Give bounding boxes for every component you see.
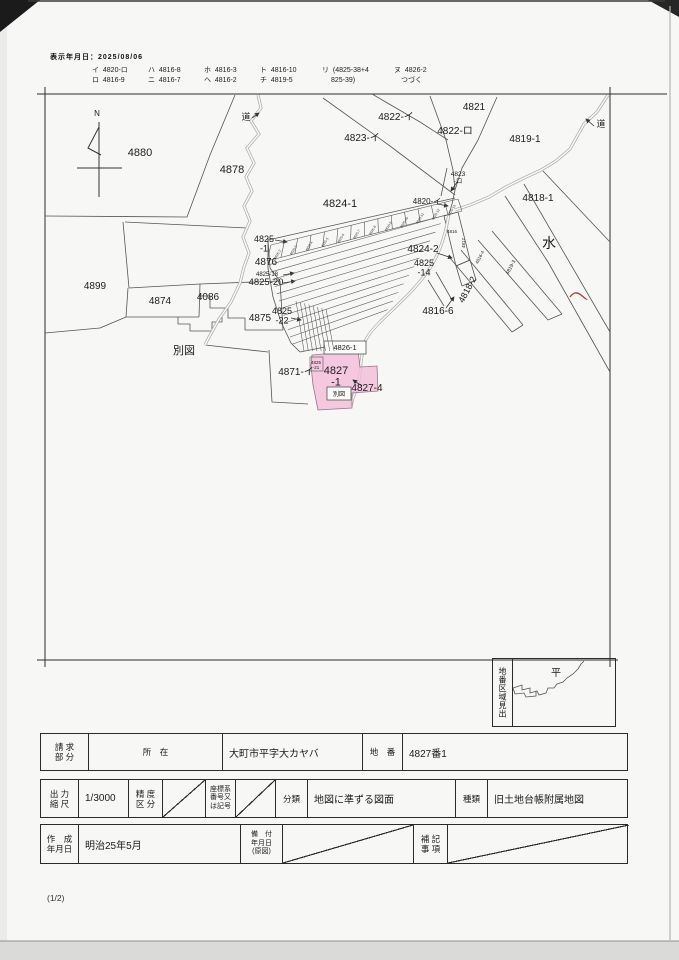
legend: イ 4820-ロロ 4816-9ハ 4816-8ニ 4816-7ホ 4816-3… [92, 66, 446, 85]
legend-entry: ハ 4816-8 [148, 66, 204, 76]
table-row-location: 請 求 部 分 所 在 大町市平字大カヤバ 地 番 4827番1 [40, 733, 628, 771]
map-label: 4880 [128, 147, 152, 159]
locator-area-name: 平 [551, 664, 561, 679]
legend-entry: イ 4820-ロ [92, 66, 148, 76]
map-label: 4822-イ [378, 112, 414, 123]
legend-column: ト 4816-10チ 4819-5 [260, 66, 322, 85]
scale-label: 出 力 縮 尺 [41, 780, 79, 817]
table-row-dates: 作 成 年月日 明治25年5月 備 付 年月日 (原図) 補 記 事 項 [40, 824, 628, 864]
legend-column: ヌ 4826-2 つづく [394, 66, 446, 85]
map-label: 4827-4 [351, 383, 383, 394]
map-label: 4825-20 [249, 277, 284, 288]
map-label: 道 [241, 111, 250, 122]
scan-bottom-strip [0, 941, 679, 960]
page-number: (1/2) [47, 893, 64, 903]
map-label: 4086 [197, 292, 220, 303]
remarks-label: 補 記 事 項 [414, 825, 448, 863]
coordinate-system-blank [236, 780, 276, 817]
map-label: 水 [542, 235, 556, 251]
locator-title-vertical: 地番区域見出 [493, 659, 513, 726]
scale-value: 1/3000 [79, 780, 129, 817]
legend-entry: ホ 4816-3 [204, 66, 260, 76]
classification-label: 分類 [276, 780, 308, 817]
request-info-table: 請 求 部 分 所 在 大町市平字大カヤバ 地 番 4827番1 出 力 縮 尺… [40, 733, 628, 864]
legend-entry: チ 4819-5 [260, 76, 322, 86]
legend-entry: ロ 4816-9 [92, 76, 148, 86]
request-part-label: 請 求 部 分 [41, 734, 89, 770]
legend-column: イ 4820-ロロ 4816-9 [92, 66, 148, 85]
installed-date-blank [283, 825, 414, 863]
map-label: 4826-1 [333, 343, 356, 352]
printed-date: 表示年月日：2025/08/06 [50, 52, 143, 62]
legend-entry: つづく [394, 76, 446, 86]
map-label: 4824-2 [407, 244, 439, 255]
legend-column: リ (4825-38+4 825-39) [322, 66, 394, 85]
map-label: 別図 [173, 344, 195, 357]
map-label: 4875 [249, 313, 272, 324]
map-label: 4871-イ [278, 367, 314, 378]
map-label: 4821 [463, 102, 486, 113]
map-label: 4824-1 [323, 198, 357, 210]
scanned-cadastral-document-page: 4825-24825-34825-44825-54825-64825-74825… [0, 0, 679, 960]
map-label: 4899 [84, 281, 107, 292]
legend-entry: ト 4816-10 [260, 66, 322, 76]
legend-entry: リ (4825-38+4 [322, 66, 394, 76]
legend-column: ホ 4816-3ヘ 4816-2 [204, 66, 260, 85]
map-label: 4816-6 [422, 306, 454, 317]
location-value: 大町市平字大カヤバ [223, 734, 363, 770]
legend-entry: ヌ 4826-2 [394, 66, 446, 76]
legend-column: ハ 4816-8ニ 4816-7 [148, 66, 204, 85]
classification-value: 地図に準ずる図面 [308, 780, 456, 817]
parcel-number-label: 地 番 [363, 734, 403, 770]
legend-entry: 825-39) [322, 76, 394, 86]
parcel-number-value: 4827番1 [403, 734, 629, 770]
precision-value-blank [163, 780, 206, 817]
map-label: 4816 [447, 229, 458, 234]
created-date-value: 明治25年5月 [79, 825, 241, 863]
map-label: 4819-1 [509, 134, 541, 145]
map-label: N [94, 109, 100, 118]
legend-entry: ニ 4816-7 [148, 76, 204, 86]
map-label: 4823-イ [344, 133, 380, 144]
map-label: 道 [596, 118, 605, 129]
map-label: 4878 [220, 164, 244, 176]
map-label: 4874 [149, 296, 172, 307]
legend-entry: ヘ 4816-2 [204, 76, 260, 86]
installed-date-label: 備 付 年月日 (原図) [241, 825, 283, 863]
map-label: 4818-1 [522, 193, 554, 204]
table-row-scale: 出 力 縮 尺 1/3000 精 度 区 分 座標系 番号又 は記号 分類 地図… [40, 779, 628, 818]
coordinate-system-label: 座標系 番号又 は記号 [206, 780, 236, 817]
locator-box: 地番区域見出 平 [492, 658, 616, 727]
kind-label: 種類 [456, 780, 488, 817]
precision-label: 精 度 区 分 [129, 780, 163, 817]
kind-value: 旧土地台帳附属地図 [488, 780, 629, 817]
created-date-label: 作 成 年月日 [41, 825, 79, 863]
map-label: 4820-イ [413, 197, 441, 206]
map-label: 4822-ロ [437, 126, 473, 137]
map-label: 別図 [333, 390, 345, 398]
location-label: 所 在 [89, 734, 223, 770]
remarks-blank [448, 825, 629, 863]
left-edge-shadow [0, 0, 7, 960]
map-label: 4876 [255, 257, 278, 268]
map-label: 4817 [461, 237, 466, 248]
